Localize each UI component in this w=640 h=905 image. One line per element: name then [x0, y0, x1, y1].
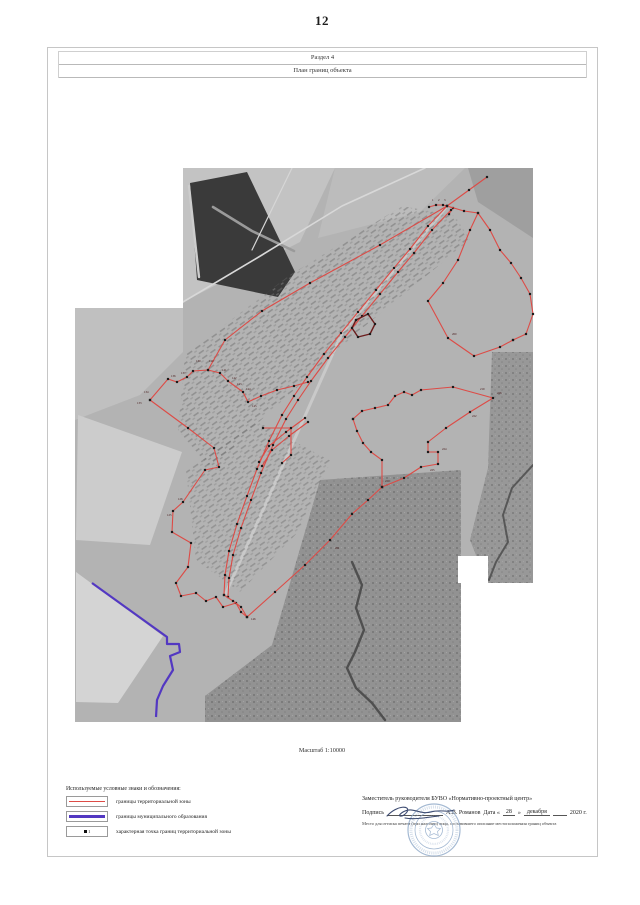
boundary-point-marker — [149, 399, 151, 401]
boundary-point-marker — [397, 271, 399, 273]
point-number-label: 145 — [252, 404, 257, 408]
boundary-point-marker — [413, 252, 415, 254]
date-close-quote: » — [518, 810, 521, 816]
boundary-point-marker — [469, 229, 471, 231]
point-number-label: 222 — [472, 414, 477, 418]
boundary-point-marker — [445, 427, 447, 429]
header-table: Раздел 4 План границ объекта — [58, 51, 587, 78]
boundary-point-marker — [167, 378, 169, 380]
boundary-point-marker — [304, 417, 306, 419]
legend-item: 1 характерная точка границ территориальн… — [66, 826, 231, 837]
boundary-point-marker — [290, 454, 292, 456]
boundary-point-marker — [307, 421, 309, 423]
point-number-label: 225 — [430, 468, 435, 472]
boundary-point-marker — [374, 407, 376, 409]
boundary-point-marker — [195, 592, 197, 594]
boundary-point-marker — [463, 210, 465, 212]
boundary-point-marker — [510, 262, 512, 264]
boundary-point-marker — [329, 539, 331, 541]
point-number-label: 146 — [251, 617, 256, 621]
boundary-point-marker — [525, 333, 527, 335]
boundary-point-marker — [207, 369, 209, 371]
boundary-point-marker — [310, 380, 312, 382]
boundary-point-marker — [351, 327, 353, 329]
municipal-line-swatch — [69, 815, 105, 818]
boundary-point-marker — [240, 611, 242, 613]
boundary-point-marker — [182, 501, 184, 503]
boundary-point-marker — [224, 574, 226, 576]
boundary-point-marker — [499, 249, 501, 251]
boundary-point-marker — [420, 466, 422, 468]
boundary-point-marker — [186, 376, 188, 378]
boundary-point-marker — [187, 427, 189, 429]
boundary-point-marker — [274, 591, 276, 593]
boundary-point-marker — [403, 391, 405, 393]
boundary-point-marker — [285, 418, 287, 420]
boundary-point-marker — [529, 293, 531, 295]
boundary-point-marker — [180, 595, 182, 597]
boundary-point-marker — [367, 313, 369, 315]
boundary-point-marker — [293, 395, 295, 397]
boundary-point-marker — [271, 449, 273, 451]
boundary-point-marker — [261, 465, 263, 467]
boundary-point-marker — [218, 466, 220, 468]
boundary-point-marker — [219, 372, 221, 374]
boundary-point-marker — [232, 600, 234, 602]
stamp-emblem — [428, 824, 441, 836]
territorial-line-swatch — [69, 801, 105, 803]
boundary-point-marker — [204, 469, 206, 471]
boundary-point-marker — [223, 594, 225, 596]
boundary-point-marker — [172, 510, 174, 512]
boundary-point-marker — [437, 463, 439, 465]
scale-label: Масштаб 1:10000 — [47, 747, 597, 754]
boundary-point-marker — [242, 391, 244, 393]
boundary-point-marker — [499, 346, 501, 348]
boundary-point-marker — [205, 600, 207, 602]
photo-seam — [458, 556, 488, 583]
boundary-point-marker — [473, 355, 475, 357]
signature-ink — [387, 807, 454, 819]
boundary-point-marker — [437, 451, 439, 453]
boundary-point-marker — [222, 606, 224, 608]
boundary-point-marker — [281, 462, 283, 464]
date-day: 28 — [503, 809, 515, 816]
header-section: Раздел 4 — [59, 52, 586, 65]
boundary-point-marker — [520, 277, 522, 279]
boundary-point-marker — [246, 616, 248, 618]
boundary-point-marker — [394, 395, 396, 397]
boundary-point-marker — [258, 461, 260, 463]
boundary-point-marker — [452, 386, 454, 388]
boundary-point-marker — [288, 435, 290, 437]
boundary-point-marker — [532, 313, 534, 315]
point-number-label: 141 — [222, 368, 227, 372]
boundary-point-marker — [262, 427, 264, 429]
point-number-label: 260 — [452, 332, 457, 336]
date-blank-underline — [553, 808, 567, 816]
boundary-point-marker — [486, 176, 488, 178]
boundary-point-marker — [351, 513, 353, 515]
boundary-point-marker — [306, 376, 308, 378]
boundary-point-marker — [344, 336, 346, 338]
point-number-label: 219 — [480, 387, 485, 391]
legend-item: границы муниципального образования — [66, 811, 231, 822]
point-number-label: 137 — [181, 371, 186, 375]
boundary-point-marker — [381, 486, 383, 488]
boundary-point-marker — [375, 289, 377, 291]
boundary-point-marker — [250, 499, 252, 501]
boundary-point-marker — [512, 339, 514, 341]
legend-symbol-municipal-line — [66, 811, 108, 822]
boundary-point-marker — [469, 411, 471, 413]
boundary-point-marker — [293, 385, 295, 387]
page-number: 12 — [47, 13, 597, 29]
boundary-point-marker — [442, 282, 444, 284]
legend-item: границы территориальной зоны — [66, 796, 231, 807]
boundary-point-marker — [450, 209, 452, 211]
boundary-point-marker — [297, 399, 299, 401]
boundary-point-marker — [367, 499, 369, 501]
point-number-label: 126 — [178, 497, 183, 501]
boundary-point-marker — [307, 381, 309, 383]
boundary-point-marker — [489, 229, 491, 231]
point-number-label: 125 — [167, 513, 172, 517]
boundary-point-marker — [369, 333, 371, 335]
boundary-point-marker — [381, 459, 383, 461]
boundary-point-marker — [370, 451, 372, 453]
boundary-point-marker — [192, 370, 194, 372]
boundary-point-marker — [374, 323, 376, 325]
boundary-point-marker — [355, 319, 357, 321]
boundary-point-marker — [247, 401, 249, 403]
boundary-point-marker — [272, 444, 274, 446]
legend-symbol-boundary-point: 1 — [66, 826, 108, 837]
boundary-point-marker — [428, 206, 430, 208]
boundary-point-marker — [228, 550, 230, 552]
boundary-point-marker — [268, 440, 270, 442]
boundary-point-marker — [352, 418, 354, 420]
map-aerial-plan: 1231391401411421431441451331341361372602… — [60, 160, 550, 730]
boundary-point-marker — [420, 389, 422, 391]
boundary-point-marker — [468, 189, 470, 191]
boundary-point-marker — [213, 447, 215, 449]
boundary-point-marker — [285, 431, 287, 433]
boundary-point-marker — [224, 339, 226, 341]
boundary-point-marker — [261, 310, 263, 312]
point-number-label: 136 — [171, 374, 176, 378]
boundary-point-marker — [356, 430, 358, 432]
boundary-point-marker — [431, 229, 433, 231]
legend: Используемые условные знаки и обозначени… — [66, 786, 231, 841]
boundary-point-marker — [340, 332, 342, 334]
boundary-point-marker — [246, 495, 248, 497]
boundary-point-marker — [176, 381, 178, 383]
boundary-point-marker — [171, 531, 173, 533]
boundary-point-marker — [228, 577, 230, 579]
boundary-point-marker — [379, 244, 381, 246]
boundary-point-marker — [492, 397, 494, 399]
boundary-point-marker — [427, 300, 429, 302]
boundary-point-marker — [256, 468, 258, 470]
point-number-label: 220 — [385, 479, 390, 483]
date-label: Дата « — [483, 810, 499, 816]
boundary-point-marker — [260, 395, 262, 397]
boundary-point-marker — [379, 293, 381, 295]
boundary-point-marker — [447, 337, 449, 339]
point-square-icon — [84, 830, 87, 833]
boundary-point-marker — [260, 472, 262, 474]
point-number-label: 133 — [137, 401, 142, 405]
point-number-label: 140 — [209, 359, 214, 363]
boundary-point-marker — [276, 389, 278, 391]
boundary-point-marker — [362, 442, 364, 444]
boundary-point-marker — [411, 394, 413, 396]
boundary-point-marker — [215, 596, 217, 598]
boundary-point-marker — [477, 212, 479, 214]
boundary-point-marker — [323, 353, 325, 355]
point-number-label: 143 — [237, 382, 242, 386]
boundary-point-marker — [427, 441, 429, 443]
point-number-label: 201 — [335, 546, 340, 550]
point-number-label: 226 — [497, 391, 502, 395]
boundary-point-marker — [304, 564, 306, 566]
boundary-point-marker — [357, 311, 359, 313]
boundary-point-marker — [361, 410, 363, 412]
point-number-label: 139 — [196, 359, 201, 363]
boundary-point-marker — [409, 248, 411, 250]
boundary-point-marker — [240, 606, 242, 608]
boundary-point-marker — [232, 554, 234, 556]
boundary-point-marker — [175, 582, 177, 584]
point-number-label: 142 — [232, 376, 237, 380]
boundary-point-marker — [435, 204, 437, 206]
boundary-point-marker — [442, 204, 444, 206]
boundary-point-marker — [190, 542, 192, 544]
point-number-label: 224 — [442, 447, 447, 451]
boundary-point-marker — [446, 205, 448, 207]
boundary-point-marker — [393, 267, 395, 269]
point-number-label: 144 — [246, 387, 251, 391]
boundary-point-marker — [427, 451, 429, 453]
legend-item-label: границы муниципального образования — [116, 814, 207, 820]
legend-symbol-territorial-line — [66, 796, 108, 807]
aerial-photo-layer — [75, 168, 533, 722]
legend-title: Используемые условные знаки и обозначени… — [66, 786, 231, 792]
boundary-point-marker — [240, 527, 242, 529]
boundary-point-marker — [227, 380, 229, 382]
boundary-point-marker — [427, 225, 429, 227]
signatory-title: Заместитель руководителя БУВО «Нормативн… — [362, 796, 600, 802]
date-month: декабря — [524, 809, 550, 816]
boundary-point-marker — [309, 282, 311, 284]
header-title: План границ объекта — [59, 65, 586, 78]
boundary-point-marker — [327, 357, 329, 359]
boundary-point-marker — [457, 259, 459, 261]
point-number: 1 — [88, 830, 90, 834]
boundary-point-marker — [268, 445, 270, 447]
date-year: 2020 г. — [570, 810, 587, 816]
boundary-point-marker — [357, 336, 359, 338]
boundary-point-marker — [387, 404, 389, 406]
boundary-point-marker — [281, 414, 283, 416]
legend-item-label: характерная точка границ территориальной… — [116, 829, 231, 835]
boundary-point-marker — [236, 523, 238, 525]
point-number-label: 134 — [144, 390, 149, 394]
legend-item-label: границы территориальной зоны — [116, 799, 191, 805]
sign-label: Подпись — [362, 810, 384, 816]
boundary-point-marker — [290, 427, 292, 429]
boundary-point-marker — [403, 477, 405, 479]
signature-squiggle — [385, 803, 457, 823]
boundary-point-marker — [187, 566, 189, 568]
